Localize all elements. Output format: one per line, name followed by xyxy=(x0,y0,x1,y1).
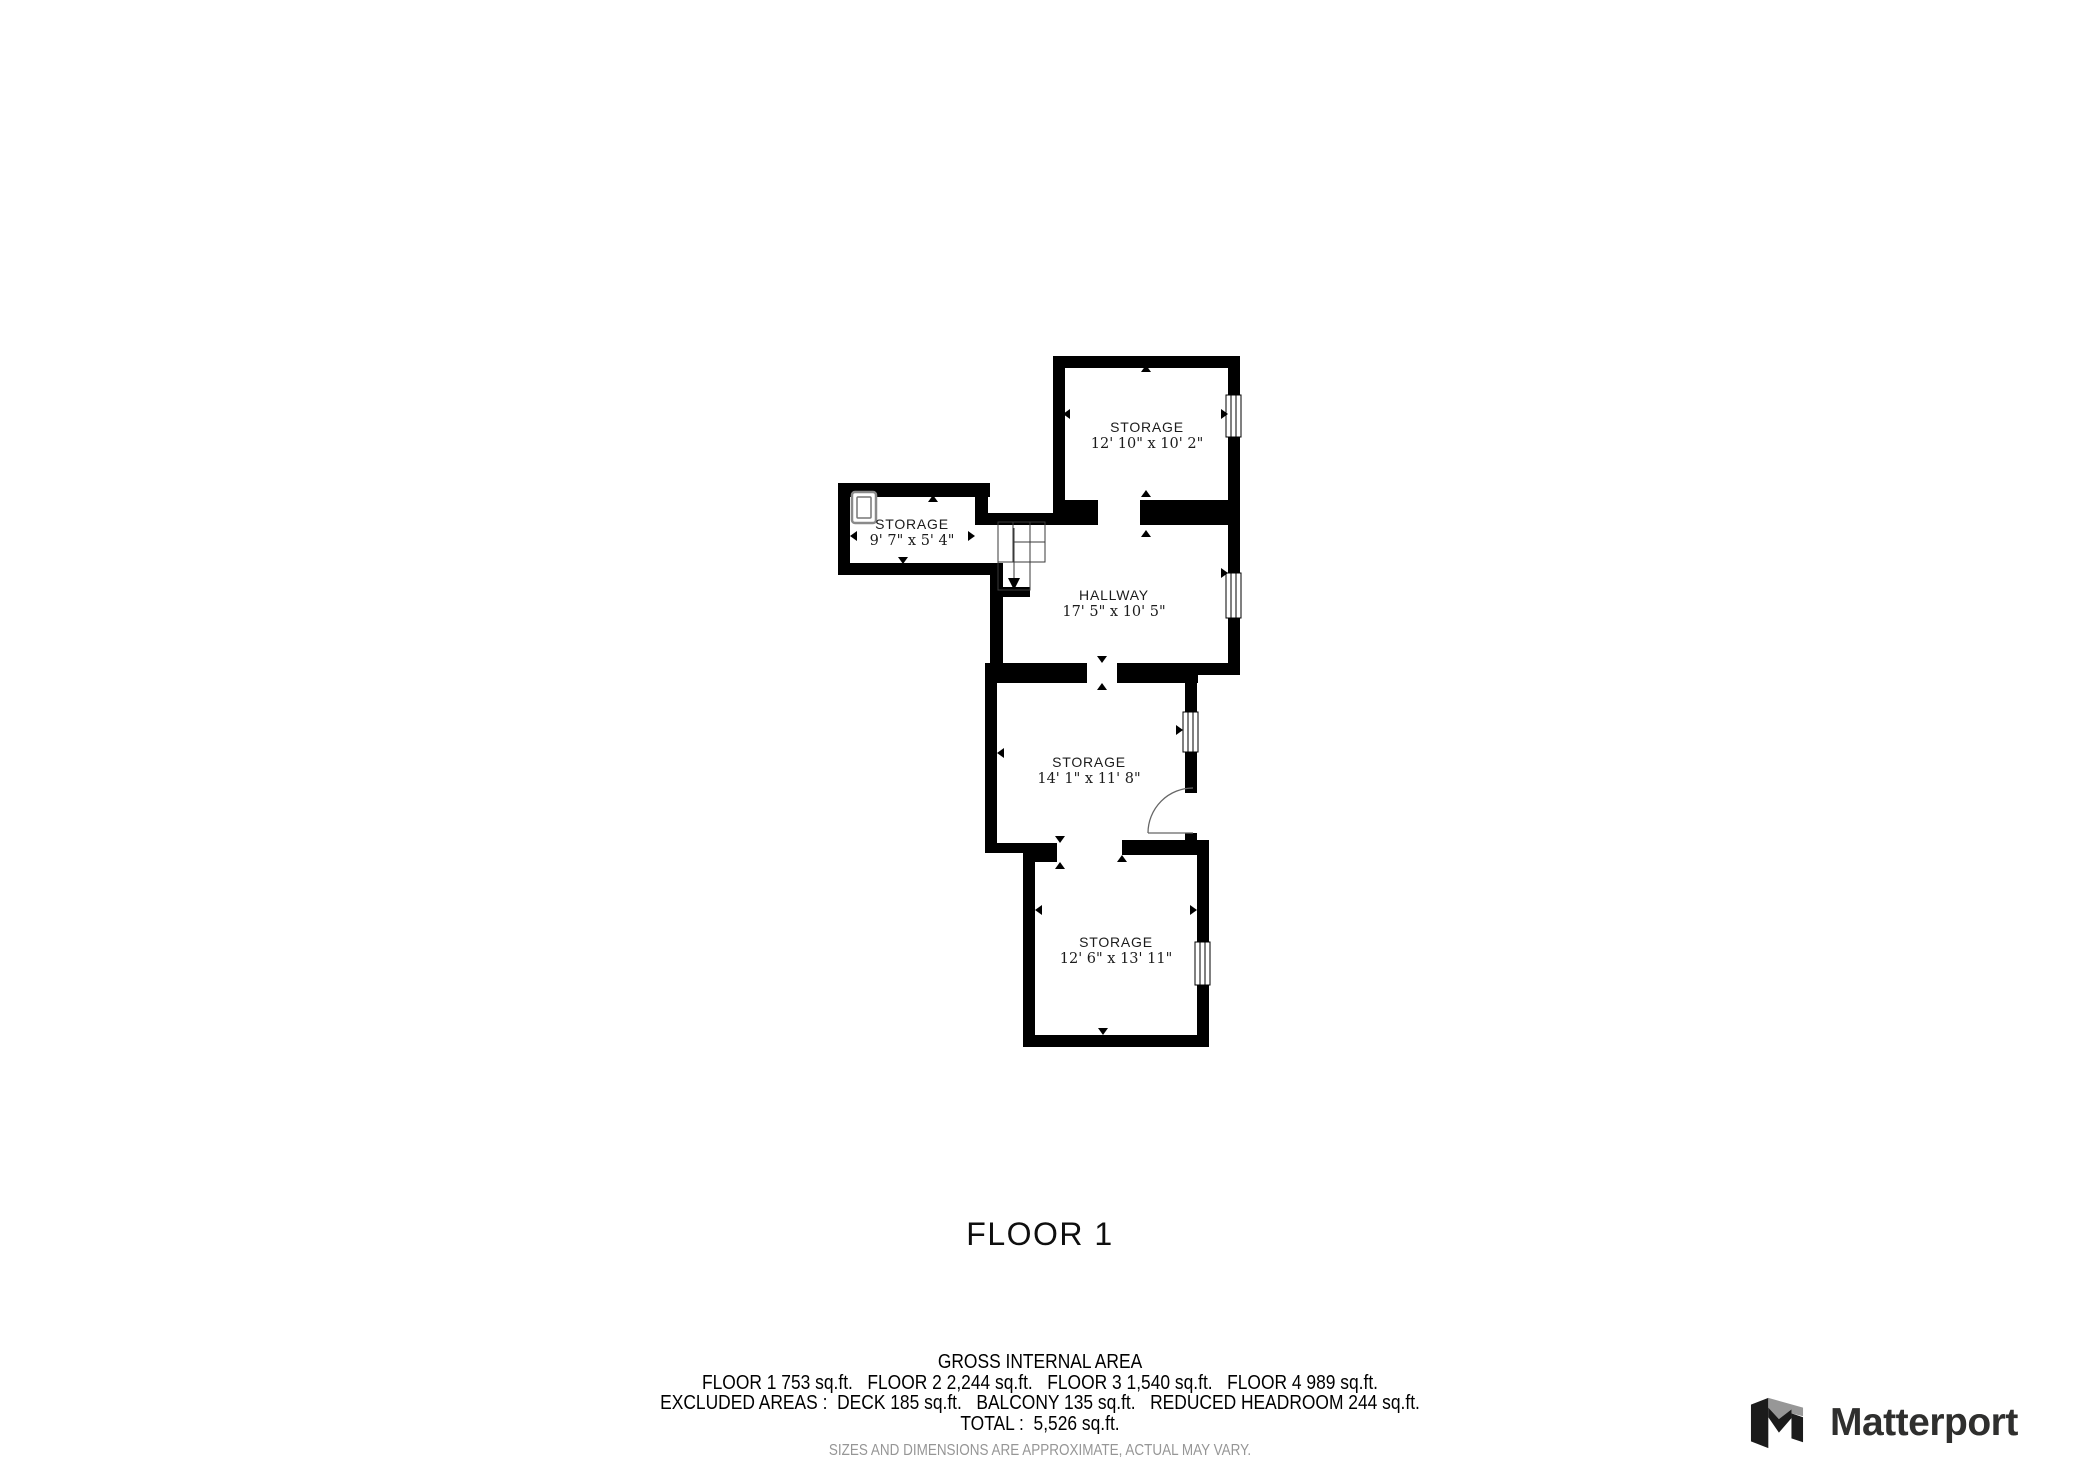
matterport-logo-text: Matterport xyxy=(1830,1401,2018,1445)
room-label-storage-bottom: STORAGE 12' 6" x 13' 11" xyxy=(1060,934,1173,968)
area-floors-line: FLOOR 1 753 sq.ft. FLOOR 2 2,244 sq.ft. … xyxy=(135,1373,1945,1394)
area-total-line: TOTAL : 5,526 sq.ft. xyxy=(135,1414,1945,1435)
floor-title: FLOOR 1 xyxy=(0,1216,2080,1253)
room-label-storage-top: STORAGE 12' 10" x 10' 2" xyxy=(1091,419,1204,453)
matterport-logo-icon xyxy=(1750,1396,1804,1450)
room-dimensions: 9' 7" x 5' 4" xyxy=(870,533,955,550)
disclaimer-text: SIZES AND DIMENSIONS ARE APPROXIMATE, AC… xyxy=(135,1441,1945,1462)
room-name: HALLWAY xyxy=(1062,587,1165,604)
room-label-hallway: HALLWAY 17' 5" x 10' 5" xyxy=(1062,587,1165,621)
window-icon xyxy=(1195,942,1210,985)
room-dimensions: 17' 5" x 10' 5" xyxy=(1062,604,1165,621)
area-summary: GROSS INTERNAL AREA FLOOR 1 753 sq.ft. F… xyxy=(135,1352,1945,1462)
area-excluded-line: EXCLUDED AREAS : DECK 185 sq.ft. BALCONY… xyxy=(135,1393,1945,1414)
window-icon xyxy=(1226,573,1241,618)
walls xyxy=(838,356,1240,1047)
window-icon xyxy=(1183,712,1198,752)
floorplan-page: STORAGE 12' 10" x 10' 2" STORAGE 9' 7" x… xyxy=(0,0,2080,1470)
room-dimensions: 12' 6" x 13' 11" xyxy=(1060,951,1173,968)
matterport-logo: Matterport xyxy=(1750,1396,2018,1450)
stairs-icon xyxy=(998,522,1045,590)
room-label-storage-middle: STORAGE 14' 1" x 11' 8" xyxy=(1037,754,1140,788)
room-name: STORAGE xyxy=(1037,754,1140,771)
room-name: STORAGE xyxy=(870,516,955,533)
room-name: STORAGE xyxy=(1060,934,1173,951)
room-label-storage-left: STORAGE 9' 7" x 5' 4" xyxy=(870,516,955,550)
room-dimensions: 14' 1" x 11' 8" xyxy=(1037,771,1140,788)
window-icon xyxy=(1226,395,1241,437)
room-dimensions: 12' 10" x 10' 2" xyxy=(1091,436,1204,453)
door-swing-icon xyxy=(1148,788,1193,833)
area-heading: GROSS INTERNAL AREA xyxy=(135,1352,1945,1373)
room-name: STORAGE xyxy=(1091,419,1204,436)
